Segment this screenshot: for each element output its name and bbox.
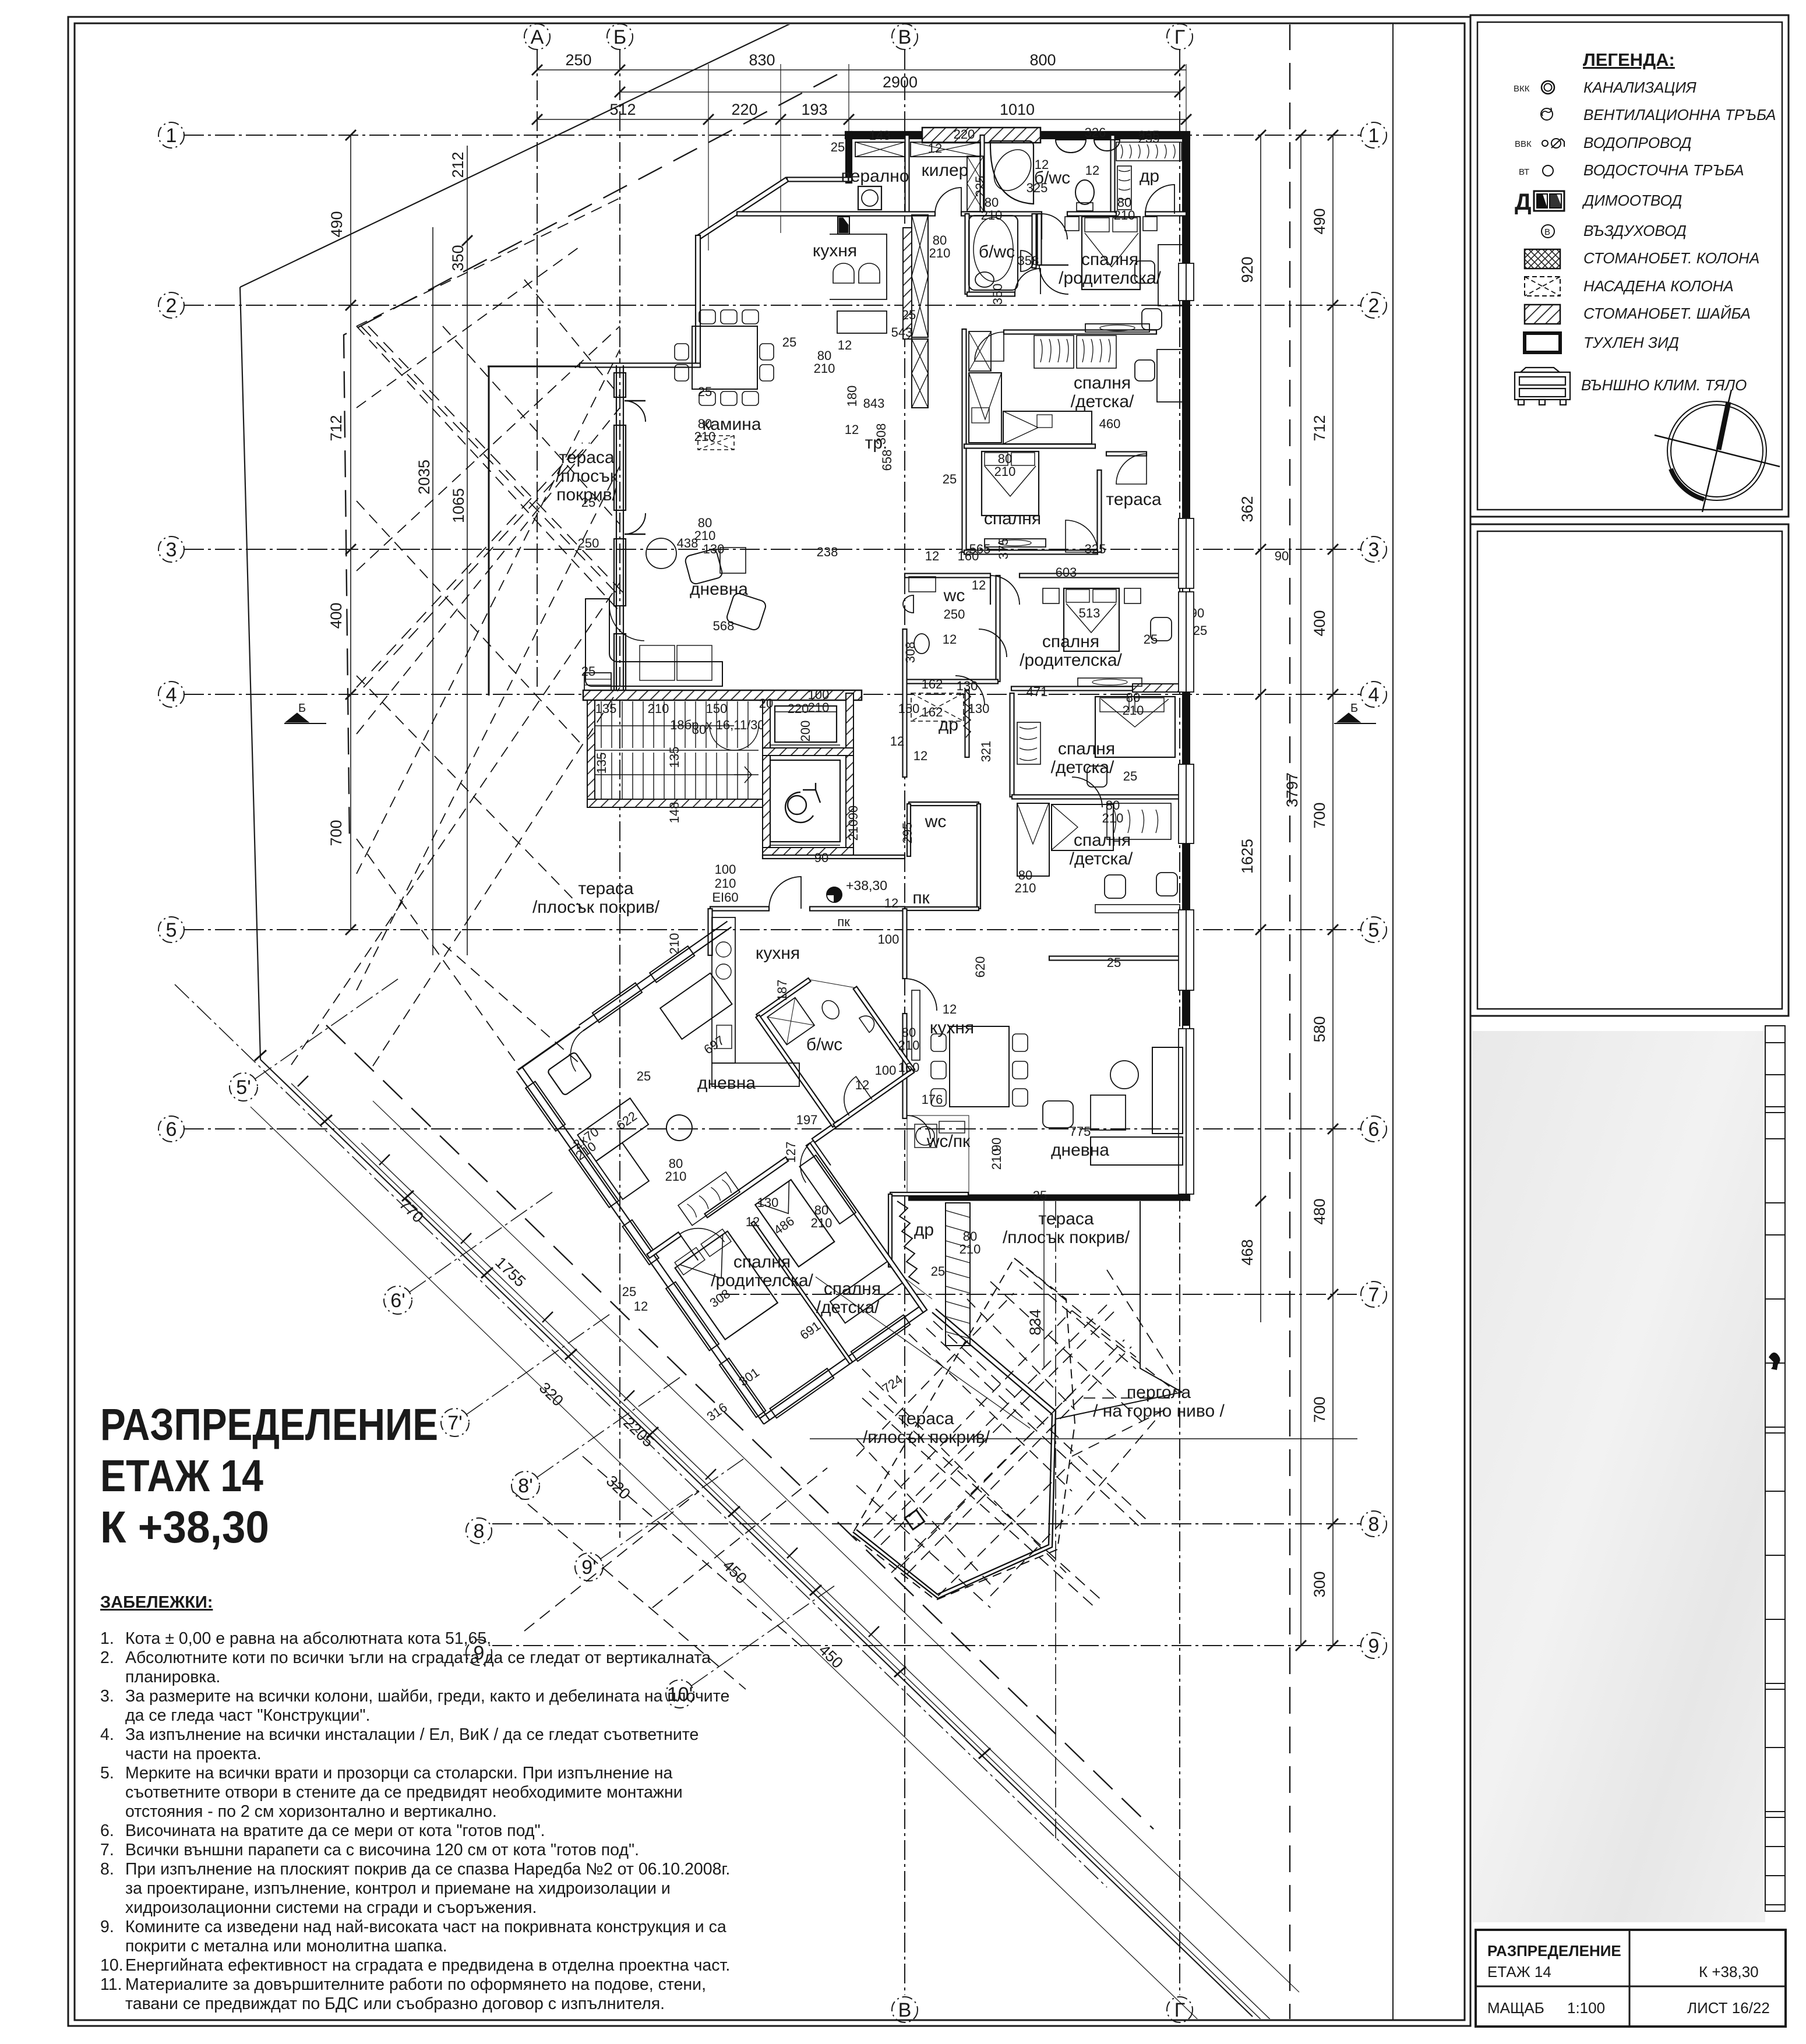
svg-text:Абсолютните коти по всички ъгл: Абсолютните коти по всички ъгли на сград…: [125, 1648, 711, 1667]
svg-text:спалня: спалня: [984, 509, 1041, 528]
svg-text:130: 130: [968, 701, 990, 716]
svg-text:НАСАДЕНА КОЛОНА: НАСАДЕНА КОЛОНА: [1583, 277, 1734, 295]
svg-text:12: 12: [890, 734, 904, 749]
svg-text:кухня: кухня: [756, 944, 800, 963]
svg-text:ВОДОСТОЧНА ТРЪБА: ВОДОСТОЧНА ТРЪБА: [1583, 161, 1744, 179]
svg-text:800: 800: [1029, 51, 1056, 69]
svg-text:ВЪЗДУХОВОД: ВЪЗДУХОВОД: [1583, 222, 1687, 239]
svg-text:9: 9: [474, 1642, 485, 1664]
svg-text:дневна: дневна: [697, 1074, 756, 1093]
svg-text:150: 150: [706, 701, 728, 716]
svg-text:тавани се предвиждат по БДС ил: тавани се предвиждат по БДС или съобразн…: [125, 1994, 665, 2013]
svg-text:843: 843: [863, 396, 885, 411]
svg-text:ЗАБЕЛЕЖКИ:: ЗАБЕЛЕЖКИ:: [100, 1593, 213, 1612]
svg-text:250: 250: [578, 536, 599, 550]
svg-text:/детска/: /детска/: [1071, 392, 1134, 411]
svg-text:съответните отвори в стените д: съответните отвори в стените да се предв…: [125, 1783, 683, 1802]
svg-text:30: 30: [692, 722, 706, 737]
svg-text:220: 220: [788, 701, 809, 716]
svg-text:3: 3: [166, 539, 177, 561]
svg-text:2035: 2035: [415, 460, 433, 495]
svg-text:200: 200: [798, 721, 813, 742]
svg-text:920: 920: [1239, 256, 1256, 283]
svg-text:покрити с метална или монолитн: покрити с метална или монолитна шапка.: [125, 1937, 447, 1955]
svg-text:25: 25: [902, 308, 916, 322]
svg-text:25: 25: [782, 335, 796, 350]
svg-text:др: др: [914, 1220, 934, 1240]
svg-text:160: 160: [958, 549, 979, 563]
svg-text:5': 5': [236, 1076, 251, 1099]
svg-text:25: 25: [581, 664, 595, 679]
svg-text:6: 6: [166, 1118, 177, 1141]
svg-text:ВТ: ВТ: [1519, 167, 1529, 177]
svg-text:Б: Б: [298, 702, 306, 715]
svg-text:700: 700: [1311, 1396, 1328, 1422]
svg-text:210: 210: [667, 933, 682, 955]
svg-text:210: 210: [694, 429, 716, 444]
svg-text:2: 2: [166, 295, 177, 317]
svg-text:18бр. х 16,11/30: 18бр. х 16,11/30: [670, 718, 765, 732]
svg-text:А: А: [531, 26, 544, 48]
svg-text:12: 12: [925, 549, 939, 563]
svg-text:МАЩАБ: МАЩАБ: [1487, 1999, 1544, 2017]
svg-text:РАЗПРЕДЕЛЕНИЕ: РАЗПРЕДЕЛЕНИЕ: [100, 1400, 438, 1450]
svg-text:ВЪНШНО КЛИМ. ТЯЛО: ВЪНШНО КЛИМ. ТЯЛО: [1581, 376, 1747, 394]
svg-text:хидроизолационни системи на сг: хидроизолационни системи на сгради и съо…: [125, 1898, 537, 1917]
svg-text:210: 210: [814, 361, 835, 376]
svg-text:25: 25: [931, 1264, 945, 1279]
svg-text:568: 568: [713, 619, 735, 633]
svg-text:210: 210: [648, 701, 669, 716]
svg-text:спалня: спалня: [733, 1252, 791, 1272]
svg-text:543: 543: [891, 325, 913, 340]
svg-text:700: 700: [327, 820, 345, 846]
svg-text:9: 9: [1368, 1635, 1380, 1657]
svg-text:210: 210: [1015, 881, 1036, 895]
svg-text:235: 235: [1138, 131, 1160, 146]
svg-text:/плосък покрив/: /плосък покрив/: [863, 1428, 990, 1447]
svg-text:РАЗПРЕДЕЛЕНИЕ: РАЗПРЕДЕЛЕНИЕ: [1487, 1942, 1621, 1960]
svg-text:спалня: спалня: [1042, 632, 1099, 651]
svg-text:2900: 2900: [883, 73, 918, 91]
svg-text:пк: пк: [912, 888, 930, 908]
svg-text:8.: 8.: [100, 1860, 114, 1879]
svg-text:25: 25: [1107, 955, 1121, 970]
svg-text:7: 7: [1368, 1284, 1380, 1306]
svg-text:планировка.: планировка.: [125, 1668, 220, 1686]
svg-text:/родителска/: /родителска/: [711, 1271, 813, 1290]
svg-text:килер: килер: [922, 161, 969, 180]
svg-text:197: 197: [796, 1113, 818, 1127]
svg-text:ЛЕГЕНДА:: ЛЕГЕНДА:: [1583, 50, 1675, 70]
svg-text:Комините са изведени над най-в: Комините са изведени над най-високата ча…: [125, 1918, 726, 1936]
svg-text:ТУХЛЕН ЗИД: ТУХЛЕН ЗИД: [1583, 334, 1679, 351]
svg-text:90: 90: [1275, 549, 1289, 563]
svg-text:143: 143: [869, 128, 891, 143]
svg-text:12: 12: [634, 1299, 648, 1314]
svg-text:ЛИСТ 16/22: ЛИСТ 16/22: [1687, 1999, 1770, 2017]
svg-text:25: 25: [1193, 623, 1207, 638]
svg-text:135: 135: [667, 747, 682, 768]
svg-text:100: 100: [715, 862, 736, 877]
svg-text:ВКК: ВКК: [1514, 84, 1530, 94]
svg-text:127: 127: [784, 1142, 798, 1163]
svg-text:4.: 4.: [100, 1725, 114, 1744]
svg-text:4: 4: [166, 684, 177, 706]
svg-text:712: 712: [1311, 415, 1328, 441]
svg-text:б/wc: б/wc: [979, 242, 1015, 262]
svg-text:дневна: дневна: [1051, 1141, 1109, 1160]
svg-text:6: 6: [1368, 1118, 1380, 1141]
svg-text:210: 210: [694, 528, 716, 543]
svg-text:2.: 2.: [100, 1648, 114, 1667]
svg-text:10': 10': [667, 1683, 693, 1706]
svg-text:1: 1: [166, 125, 177, 147]
svg-text:603: 603: [1056, 565, 1077, 580]
svg-text:620: 620: [973, 956, 987, 978]
svg-text:12: 12: [845, 422, 859, 437]
svg-text:Мерките на всички врати и проз: Мерките на всички врати и прозорци са ст…: [125, 1764, 672, 1782]
svg-text:Б: Б: [613, 26, 626, 48]
svg-text:отстояния - по 2 см хоризонтал: отстояния - по 2 см хоризонтално и верти…: [125, 1802, 497, 1821]
svg-text:325: 325: [1085, 542, 1106, 556]
svg-text:775: 775: [1070, 1124, 1091, 1139]
svg-text:325: 325: [1027, 181, 1048, 195]
svg-text:/детска/: /детска/: [816, 1298, 880, 1317]
svg-text:162: 162: [922, 705, 943, 719]
svg-text:830: 830: [749, 51, 775, 69]
svg-text:100: 100: [878, 932, 900, 947]
svg-text:135: 135: [595, 701, 617, 716]
svg-text:/родителска/: /родителска/: [1020, 651, 1122, 670]
svg-text:90: 90: [814, 850, 828, 865]
svg-text:перално: перално: [841, 167, 909, 186]
svg-text:25: 25: [1033, 1188, 1047, 1203]
svg-text:12: 12: [746, 1215, 760, 1229]
svg-text:10.: 10.: [100, 1956, 124, 1975]
svg-text:162: 162: [922, 677, 943, 691]
svg-text:части на проекта.: части на проекта.: [125, 1745, 262, 1763]
svg-text:1.: 1.: [100, 1629, 114, 1648]
svg-text:5: 5: [166, 919, 177, 941]
svg-text:/плосък покрив/: /плосък покрив/: [1003, 1228, 1130, 1247]
svg-text:25: 25: [831, 140, 845, 154]
svg-text:210: 210: [1123, 703, 1144, 718]
svg-text:Д: Д: [1515, 189, 1532, 215]
svg-text:др: др: [1140, 167, 1159, 186]
svg-text:За размерите на всички колони,: За размерите на всички колони, шайби, гр…: [125, 1687, 729, 1706]
svg-text:210: 210: [929, 246, 951, 260]
svg-text:321: 321: [979, 741, 993, 762]
svg-text:187: 187: [775, 980, 789, 1001]
svg-text:210: 210: [665, 1169, 687, 1184]
svg-text:25: 25: [622, 1284, 636, 1299]
svg-text:1: 1: [1368, 125, 1380, 147]
svg-text:308: 308: [903, 642, 918, 663]
svg-text:210: 210: [846, 820, 860, 841]
svg-text:25: 25: [943, 472, 957, 486]
svg-text:К +38,30: К +38,30: [1699, 1963, 1759, 1981]
svg-text:Всички външни парапети са с ви: Всички външни парапети са с височина 120…: [125, 1841, 639, 1859]
svg-text:130: 130: [757, 1195, 779, 1210]
svg-text:пк: пк: [837, 915, 850, 929]
svg-text:210: 210: [994, 464, 1016, 479]
svg-text:225: 225: [973, 176, 987, 197]
svg-text:176: 176: [922, 1092, 943, 1107]
svg-text:400: 400: [327, 602, 345, 629]
svg-text:1:100: 1:100: [1567, 1999, 1605, 2017]
svg-text:кухня: кухня: [930, 1018, 974, 1037]
svg-text:130: 130: [957, 679, 978, 693]
svg-text:3.: 3.: [100, 1687, 114, 1706]
svg-text:2: 2: [1368, 295, 1380, 317]
svg-text:wc: wc: [925, 812, 947, 831]
svg-text:6.: 6.: [100, 1821, 114, 1840]
svg-text:В: В: [898, 1999, 912, 2021]
svg-text:В: В: [898, 26, 912, 48]
svg-text:460: 460: [1099, 416, 1121, 431]
svg-text:/родителска/: /родителска/: [1059, 269, 1161, 288]
svg-text:5.: 5.: [100, 1764, 114, 1782]
svg-text:ЕТАЖ 14: ЕТАЖ 14: [1487, 1963, 1551, 1981]
svg-text:658: 658: [880, 450, 894, 471]
svg-text:210: 210: [715, 876, 736, 891]
svg-text:220: 220: [954, 127, 975, 142]
svg-text:ДИМООТВОД: ДИМООТВОД: [1582, 192, 1682, 209]
svg-text:375: 375: [996, 538, 1011, 560]
svg-text:да се гледа част "Конструкции": да се гледа част "Конструкции".: [125, 1706, 370, 1725]
svg-text:295: 295: [900, 822, 915, 844]
svg-text:Б: Б: [1350, 702, 1358, 715]
svg-text:8: 8: [1368, 1513, 1380, 1535]
svg-text:90: 90: [846, 806, 860, 820]
svg-text:11.: 11.: [100, 1975, 122, 1994]
svg-text:спалня: спалня: [1081, 250, 1138, 269]
svg-text:100: 100: [875, 1063, 897, 1078]
svg-text:468: 468: [1239, 1239, 1256, 1265]
svg-text:1065: 1065: [450, 488, 467, 523]
svg-text:513: 513: [1079, 606, 1100, 620]
svg-text:Височината на вратите да се ме: Височината на вратите да се мери от кота…: [125, 1821, 545, 1840]
svg-text:3: 3: [1368, 539, 1380, 561]
svg-text:спалня: спалня: [1058, 739, 1115, 758]
svg-text:ВЕНТИЛАЦИОННА ТРЪБА: ВЕНТИЛАЦИОННА ТРЪБА: [1583, 106, 1776, 123]
svg-text:8': 8': [518, 1475, 532, 1497]
svg-text:210: 210: [989, 1149, 1004, 1170]
svg-text:480: 480: [1311, 1198, 1328, 1224]
svg-text:спалня: спалня: [1074, 831, 1131, 850]
svg-text:350: 350: [449, 245, 467, 271]
svg-text:ВВК: ВВК: [1515, 139, 1532, 149]
svg-text:210: 210: [898, 1038, 920, 1053]
svg-text:212: 212: [449, 151, 467, 178]
svg-text:25: 25: [637, 1069, 651, 1083]
svg-text:490: 490: [1311, 208, 1328, 234]
svg-text:ЕТАЖ 14: ЕТАЖ 14: [100, 1451, 263, 1501]
svg-text:148: 148: [667, 802, 682, 824]
svg-text:362: 362: [1239, 496, 1256, 522]
svg-text:пергола: пергола: [1127, 1383, 1191, 1402]
svg-text:300: 300: [1311, 1571, 1328, 1597]
svg-text:471: 471: [1027, 684, 1048, 699]
svg-text:тераса: тераса: [1106, 490, 1161, 509]
svg-text:180: 180: [845, 386, 859, 407]
svg-text:тераса: тераса: [1038, 1209, 1094, 1228]
svg-text:12: 12: [1035, 157, 1049, 172]
svg-text:7': 7': [447, 1412, 462, 1434]
svg-text:За изпълнение на всички инстал: За изпълнение на всички инсталации / Ел,…: [125, 1725, 699, 1744]
svg-text:250: 250: [944, 607, 965, 622]
svg-text:+38,30: +38,30: [846, 878, 887, 893]
svg-text:7.: 7.: [100, 1841, 114, 1859]
svg-text:700: 700: [1311, 802, 1328, 828]
svg-text:8: 8: [474, 1520, 485, 1542]
svg-text:130: 130: [703, 542, 725, 556]
svg-text:1625: 1625: [1239, 839, 1256, 874]
svg-text:спалня: спалня: [1074, 373, 1131, 393]
svg-text:дневна: дневна: [690, 580, 748, 599]
svg-text:12: 12: [838, 338, 852, 352]
svg-text:326: 326: [1085, 125, 1106, 140]
svg-text:220: 220: [731, 101, 757, 118]
svg-text:135: 135: [594, 753, 609, 774]
svg-text:12: 12: [1085, 163, 1099, 178]
svg-text:9.: 9.: [100, 1918, 114, 1936]
svg-text:210: 210: [960, 1242, 981, 1256]
svg-text:ВОДОПРОВОД: ВОДОПРОВОД: [1583, 134, 1691, 151]
svg-text:3797: 3797: [1283, 772, 1301, 807]
svg-text:712: 712: [327, 415, 345, 441]
svg-text:При изпълнение на плоският пок: При изпълнение на плоският покрив да се …: [125, 1860, 730, 1879]
svg-text:490: 490: [328, 211, 345, 237]
svg-text:160: 160: [898, 1060, 920, 1075]
svg-text:210: 210: [811, 1216, 833, 1230]
svg-text:ЕІ60: ЕІ60: [712, 890, 738, 905]
svg-text:СТОМАНОБЕТ. КОЛОНА: СТОМАНОБЕТ. КОЛОНА: [1583, 249, 1759, 267]
svg-text:25: 25: [1123, 769, 1137, 783]
svg-text:КАНАЛИЗАЦИЯ: КАНАЛИЗАЦИЯ: [1583, 79, 1696, 96]
svg-text:В: В: [1544, 227, 1550, 237]
svg-text:4: 4: [1368, 684, 1380, 706]
svg-text:193: 193: [801, 101, 827, 118]
svg-text:К +38,30: К +38,30: [100, 1502, 269, 1552]
svg-text:кухня: кухня: [813, 241, 857, 260]
svg-text:250: 250: [565, 51, 591, 69]
svg-text:за проектиране, изпълнение, ко: за проектиране, изпълнение, контрол и пр…: [125, 1879, 671, 1898]
svg-text:25: 25: [581, 495, 595, 510]
svg-text:308: 308: [874, 423, 888, 445]
svg-text:Материалите за довършителните: Материалите за довършителните работи по …: [125, 1975, 706, 1994]
svg-text:238: 238: [817, 545, 838, 559]
svg-text:210: 210: [808, 700, 830, 715]
svg-text:СТОМАНОБЕТ. ШАЙБА: СТОМАНОБЕТ. ШАЙБА: [1583, 305, 1751, 322]
svg-text:б/wc: б/wc: [806, 1035, 842, 1054]
svg-text:/плосък покрив/: /плосък покрив/: [532, 898, 660, 917]
svg-text:Г: Г: [1174, 26, 1185, 48]
svg-text:/детска/: /детска/: [1070, 849, 1133, 869]
svg-text:тераса: тераса: [559, 448, 614, 467]
svg-text:/ на горно ниво /: / на горно ниво /: [1093, 1402, 1225, 1421]
svg-text:150: 150: [898, 701, 920, 716]
svg-text:6': 6': [390, 1290, 405, 1312]
svg-text:5: 5: [1368, 919, 1380, 941]
svg-text:12: 12: [943, 1002, 957, 1016]
svg-text:12: 12: [884, 896, 898, 910]
svg-text:тераса: тераса: [578, 879, 633, 898]
svg-text:wc: wc: [943, 586, 965, 605]
svg-text:12: 12: [972, 578, 986, 592]
svg-text:Енергийната ефективност на сгр: Енергийната ефективност на сградата е пр…: [125, 1956, 730, 1975]
svg-text:12: 12: [913, 749, 927, 763]
svg-text:400: 400: [1311, 610, 1328, 636]
svg-text:1010: 1010: [1000, 101, 1035, 118]
svg-text:350: 350: [990, 284, 1005, 305]
svg-text:Кота ± 0,00 е равна на абсолю: Кота ± 0,00 е равна на абсолютната кота …: [125, 1629, 491, 1648]
svg-text:580: 580: [1311, 1016, 1328, 1042]
svg-text:12: 12: [943, 632, 957, 647]
svg-text:20: 20: [759, 696, 773, 711]
